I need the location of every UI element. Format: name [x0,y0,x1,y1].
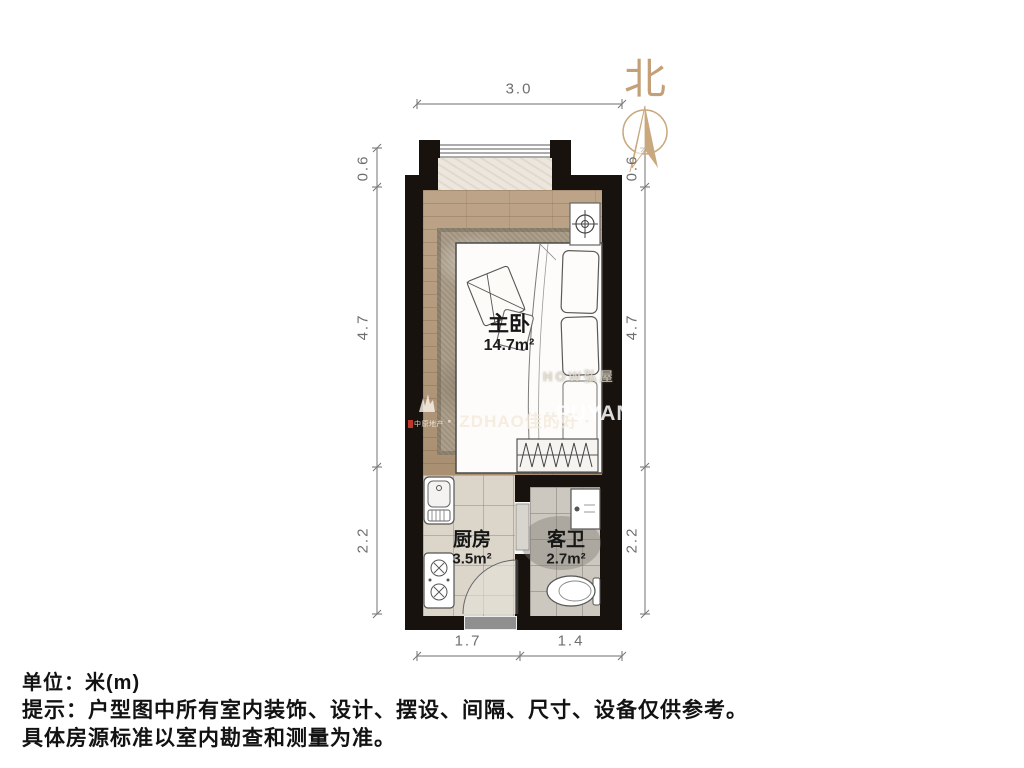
watermark-logo-mark [408,420,413,428]
footer-unit-line: 单位：米(m) [22,666,140,695]
bedroom-area: 14.7m² [484,337,535,355]
dimension-label-left-bottom: 2.2 [355,527,372,554]
kitchen-area: 3.5m² [452,551,491,568]
watermark-brand-right: PUYAN [556,402,636,428]
bay-window-post-left [419,140,440,176]
dimension-label-bottom-left: 1.7 [455,633,482,650]
dimension-label-right-top: 0.6 [624,155,641,182]
bathroom-label: 客卫 [547,525,585,552]
watermark-separator: · [447,412,454,431]
dimension-label-left-top: 0.6 [355,155,372,182]
watermark-logo-caption: 中原地产 [408,419,444,429]
bedroom-label: 主卧 [488,308,530,338]
footer-note-line2: 具体房源标准以室内勘查和测量为准。 [22,722,396,752]
watermark-faint-text: HOW弘屋 [543,366,616,385]
watermark-brand-right-text: PUYAN [556,402,633,425]
watermark-logo-text: 中原地产 [414,419,444,429]
bay-window [440,141,550,159]
dimension-label-top: 3.0 [506,81,533,98]
bay-window-sill [438,158,552,190]
dimension-label-left-middle: 4.7 [355,314,372,341]
dimension-label-right-bottom: 2.2 [624,527,641,554]
north-label: 北 [624,46,666,107]
bathroom-door-opening [515,502,530,554]
bay-window-post-right [550,140,571,176]
bathroom-area: 2.7m² [546,551,585,568]
watermark-logo: 中原地产 [408,392,444,429]
dimension-label-right-middle: 4.7 [624,314,641,341]
floorplan-page: { "compass": { "label": "北" }, "rooms": … [0,0,1024,768]
kitchen-label: 厨房 [453,525,491,552]
dimension-label-bottom-right: 1.4 [558,633,585,650]
entry-door [464,616,517,630]
watermark-logo-icon [413,392,439,414]
footer-note-line1: 提示：户型图中所有室内装饰、设计、摆设、间隔、尺寸、设备仅供参考。 [22,694,748,724]
